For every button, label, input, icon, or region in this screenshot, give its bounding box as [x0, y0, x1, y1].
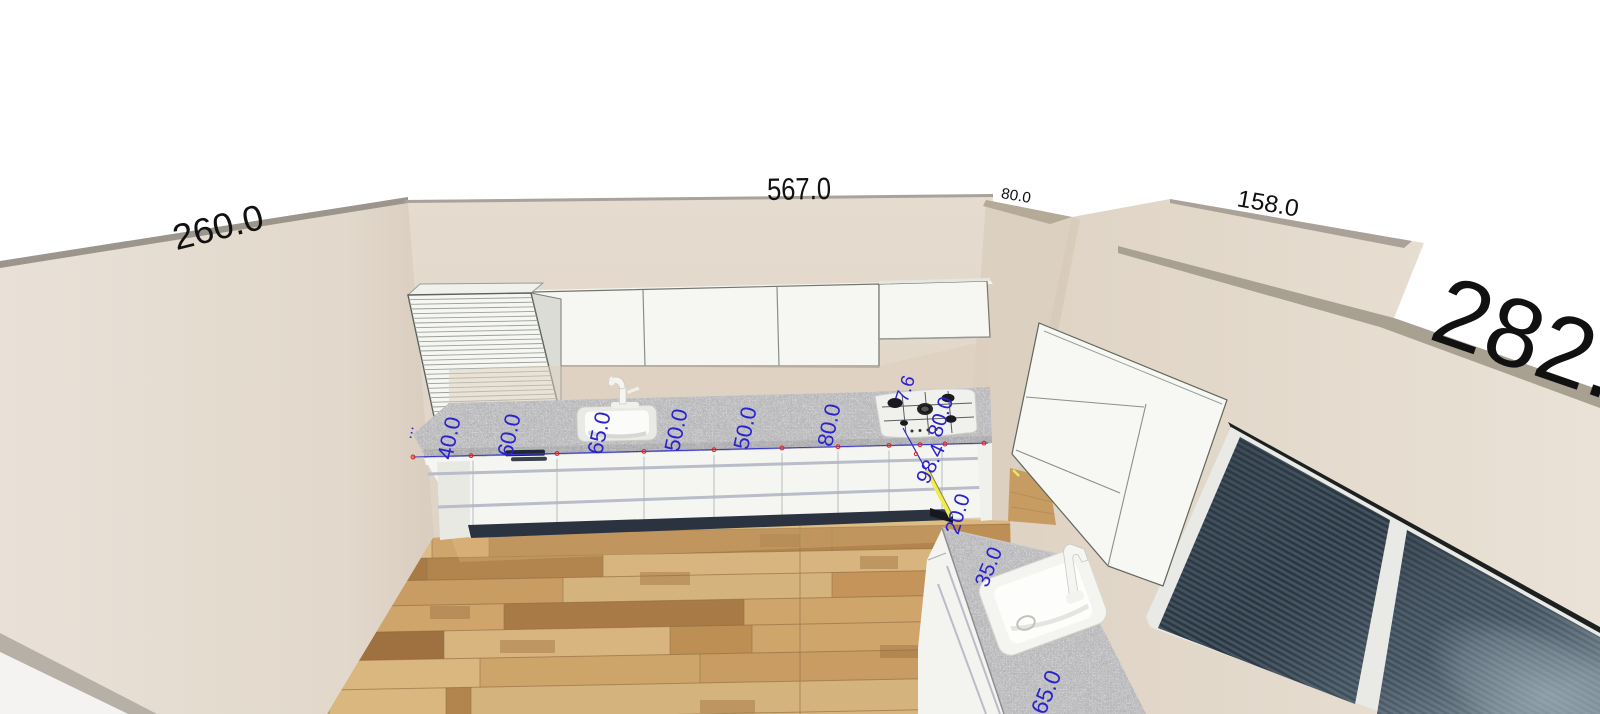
svg-text:567.0: 567.0 [767, 171, 832, 207]
